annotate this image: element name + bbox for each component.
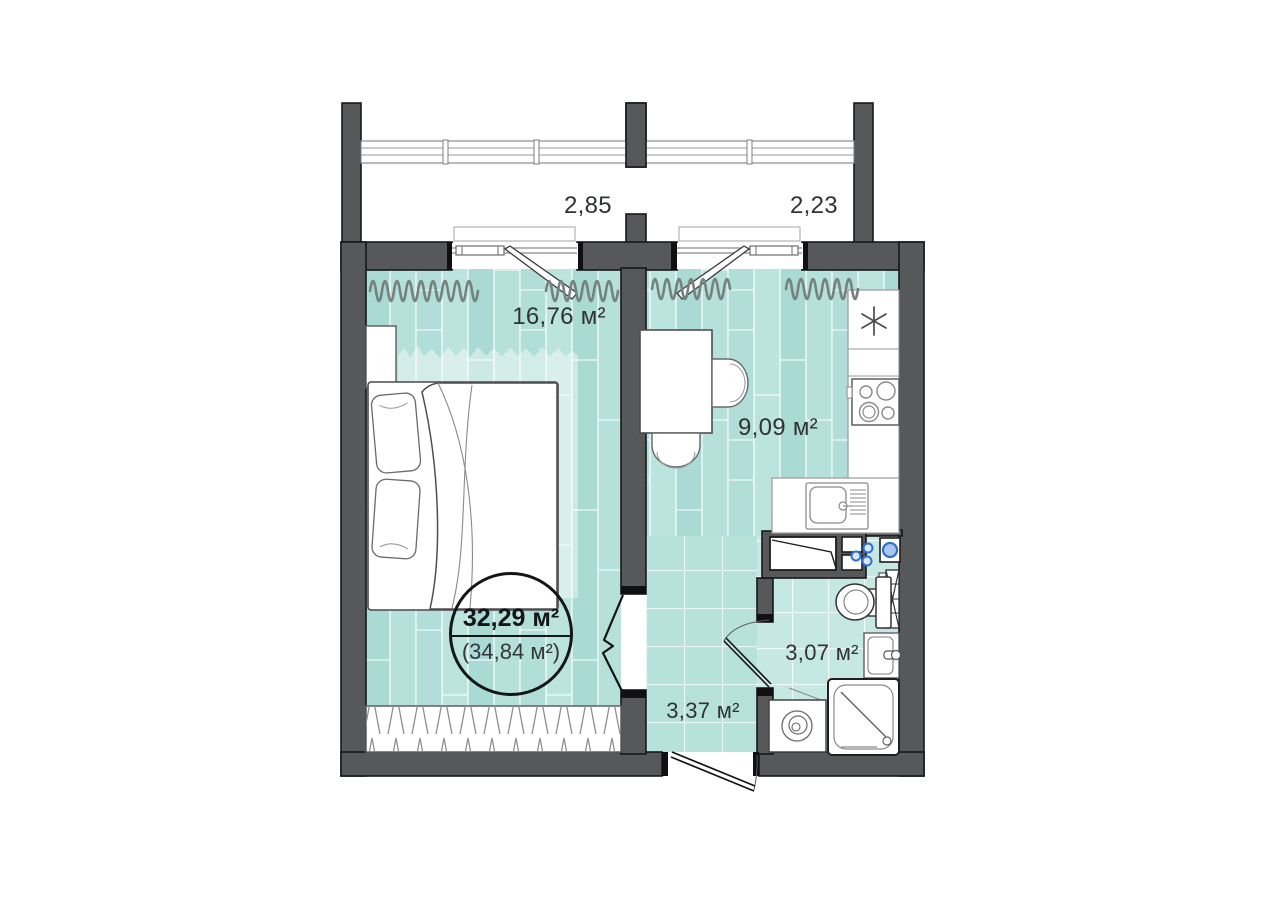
bathroom-sink — [864, 633, 901, 678]
dining-table — [640, 330, 712, 433]
jamb-cap — [662, 752, 668, 776]
window-sash — [750, 246, 798, 255]
vent-duct — [842, 537, 862, 552]
hob-handle — [847, 387, 852, 398]
toilet-tank — [876, 577, 891, 628]
balcony-pier-middle-low — [626, 214, 646, 244]
bedroom-area-label: 16,76 м² — [512, 303, 606, 331]
top-wall-middle — [577, 242, 677, 270]
shower-tray — [828, 679, 899, 755]
bottom-wall-left — [341, 752, 662, 776]
pillow — [371, 479, 420, 560]
window-sill — [454, 227, 575, 241]
hallway-area-label: 3,37 м² — [666, 698, 739, 724]
left-outer-wall — [341, 242, 366, 776]
drainboard — [850, 490, 866, 514]
jamb-cap — [757, 688, 773, 696]
nightstand — [366, 326, 396, 388]
floor-plan-graphic — [0, 0, 1280, 906]
balcony-pier-right — [854, 103, 873, 250]
drain-icon — [883, 737, 891, 745]
window-sash — [456, 246, 504, 255]
jamb-cap — [621, 586, 646, 594]
glazing-mullion — [443, 140, 448, 164]
balcony-left-width-label: 2,85 — [564, 192, 612, 220]
right-outer-wall — [899, 242, 924, 776]
total-area-main: 32,29 м² — [463, 605, 559, 631]
total-area-badge: 32,29 м² (34,84 м²) — [449, 572, 573, 696]
window-sill — [679, 227, 800, 241]
kitchen-sink — [806, 483, 868, 529]
kitchen-area-label: 9,09 м² — [738, 414, 818, 442]
glazing-mullion — [534, 140, 539, 164]
floor-plan: 2,85 2,23 16,76 м² 9,09 м² 3,07 м² 3,37 … — [0, 0, 1280, 906]
wardrobe — [366, 706, 621, 752]
bathroom-area-label: 3,07 м² — [785, 640, 858, 666]
balcony-glazing — [361, 103, 854, 167]
bedroom-inner-wall-lower — [621, 690, 646, 754]
balcony-pier-left — [342, 103, 361, 250]
water-heater-icon — [880, 538, 900, 562]
stove-hob — [847, 379, 899, 425]
jamb-cap — [671, 242, 677, 270]
chair — [712, 359, 748, 407]
entrance-door — [671, 752, 757, 791]
pillow — [371, 392, 422, 474]
balcony-pier-overlay — [626, 103, 646, 167]
balcony-right-width-label: 2,23 — [790, 192, 838, 220]
total-area-divider — [452, 635, 570, 637]
total-area-secondary: (34,84 м²) — [462, 640, 560, 663]
jamb-cap — [753, 752, 759, 776]
glazing-mullion — [747, 140, 752, 164]
